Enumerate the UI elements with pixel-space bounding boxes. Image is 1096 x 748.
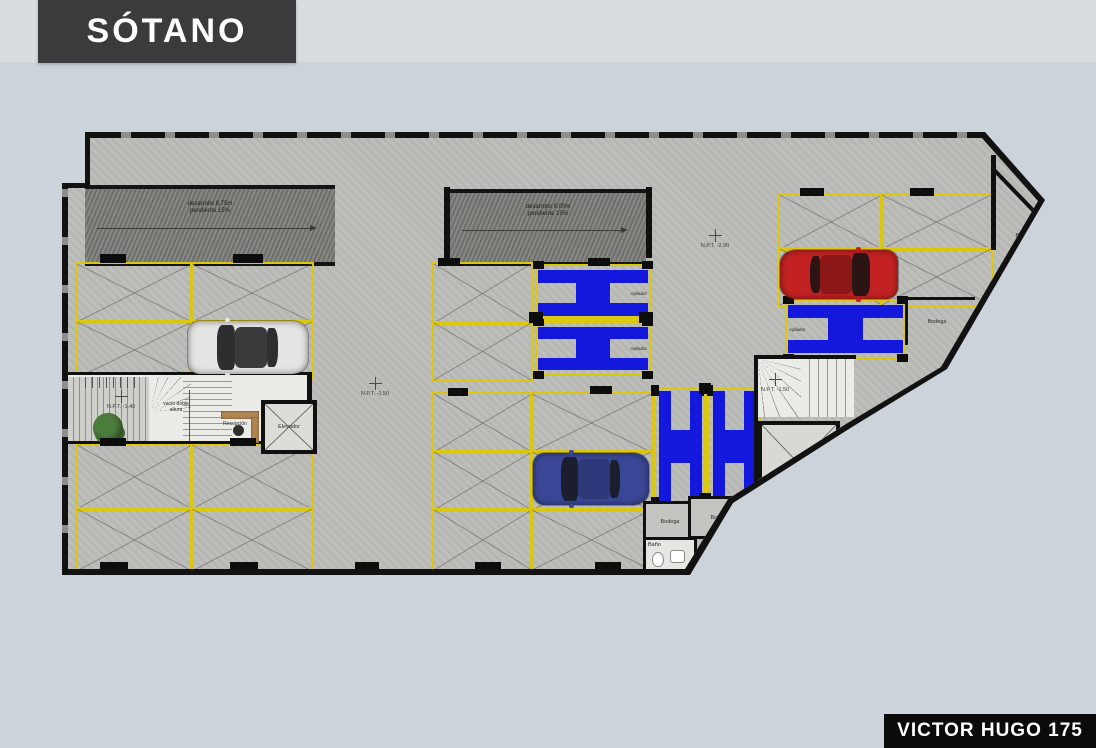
lift-platform [576,282,610,305]
lift-post [642,371,653,379]
lift-platform [724,430,745,464]
parking-spot [880,193,993,251]
lift-post [533,371,544,379]
column [910,188,934,196]
parking-spot [190,262,314,324]
car-blue [533,453,649,505]
car-rear-window [810,256,821,292]
ramp-left-label: desarrollo 8.75m pendiente 15% [85,201,335,215]
level-marker: N.P.T. -1.50 [347,377,403,398]
column [100,438,126,446]
reception-label: Recepción [215,421,255,427]
stacker-label: Apilador [630,291,647,296]
sink-icon [670,550,685,563]
lift-platform [538,358,648,370]
project-name-box: VICTOR HUGO 175 [884,714,1096,748]
stair-rail [189,390,190,441]
elevator: Elevador [261,400,317,454]
lift-post [639,312,653,323]
lift-post [897,354,908,362]
lift-platform [690,391,702,502]
column [438,258,460,266]
parking-spot [75,262,194,324]
sheet-title-box: SÓTANO [38,0,296,63]
column [800,188,824,196]
column [100,254,126,263]
left-wall-openings [62,185,68,573]
level-marker: N.P.T. -2.90 [687,229,743,250]
column [448,388,468,396]
wall [646,187,652,258]
parking-spot [432,321,533,382]
car-roof [820,255,852,293]
bodega-label: Bodega [917,319,957,325]
bath-label: Baño [648,542,661,548]
car-white [188,321,308,374]
car-roof [578,459,609,500]
car-rear-window [267,328,278,367]
car-lift [653,388,707,505]
car-windshield [217,325,235,371]
lift-post [533,261,544,269]
lift-platform [538,303,648,316]
ramp-direction-arrow-icon [97,228,315,229]
parking-spot [778,193,884,251]
level-marker-icon [369,377,382,390]
ramp-direction-arrow-icon [462,230,626,231]
lift-post [529,312,543,323]
stacker-label: Apilador [630,346,647,351]
parking-spot [432,392,534,454]
lift-platform [828,317,863,341]
level-marker: N.P.T. -1.50 [745,373,805,394]
lift-platform [788,340,903,353]
car-red [780,250,898,299]
lift-platform [576,338,610,359]
lift-axis [535,316,647,319]
car-mirror [569,504,574,508]
floor-plan: desarrollo 8.75m pendiente 15% desarroll… [55,125,1055,580]
car-roof [235,327,267,368]
sheet-title: SÓTANO [87,12,248,51]
wall [905,297,975,300]
plan-floor: desarrollo 8.75m pendiente 15% desarroll… [55,125,1055,580]
wall [444,187,450,258]
lift-post [699,383,711,394]
level-marker-icon [769,373,782,386]
shaft [758,421,840,507]
car-mirror [569,450,574,454]
column [233,254,263,263]
lift-post [755,497,763,508]
project-name: VICTOR HUGO 175 [897,720,1083,742]
column [230,438,256,446]
toilet-icon [652,552,664,567]
level-marker: N.P.T. -1.40 [95,390,147,411]
void-label: vacío doble altura [159,401,193,413]
parking-spot [530,392,653,454]
parking-spot [432,450,534,512]
bodega-label: Bodega [661,519,680,525]
column [588,258,610,266]
ramp-center-label: desarrollo 8.00m pendiente 15% [450,204,646,218]
stacker-label: Apilador [789,327,806,332]
page: { "window": { "bg": "#ccd3da" }, "header… [0,0,1096,748]
elevator-label: Elevador [278,424,300,430]
parking-spot [530,508,653,572]
car-rear-window [610,460,620,499]
column [590,386,612,394]
lift-platform [670,430,691,464]
parking-spot [432,262,533,325]
top-wall-openings [87,132,983,138]
stair-dimension-ticks [85,377,141,388]
car-windshield [852,253,870,295]
parking-spot [75,507,194,573]
stair-treads [801,359,854,417]
car-lift: Apilador [535,321,651,376]
level-marker-icon [709,229,722,242]
lift-post [651,385,659,396]
lift-post [642,261,653,269]
parking-spot [75,320,194,380]
parking-spot [75,443,194,511]
car-lift: Apilador [535,264,651,322]
car-windshield [561,457,578,502]
level-marker-icon [115,390,128,403]
ramp-center: desarrollo 8.00m pendiente 15% [450,189,646,266]
wall [905,297,908,345]
car-lift: Apilador [785,299,906,359]
lift-axis [704,388,707,501]
